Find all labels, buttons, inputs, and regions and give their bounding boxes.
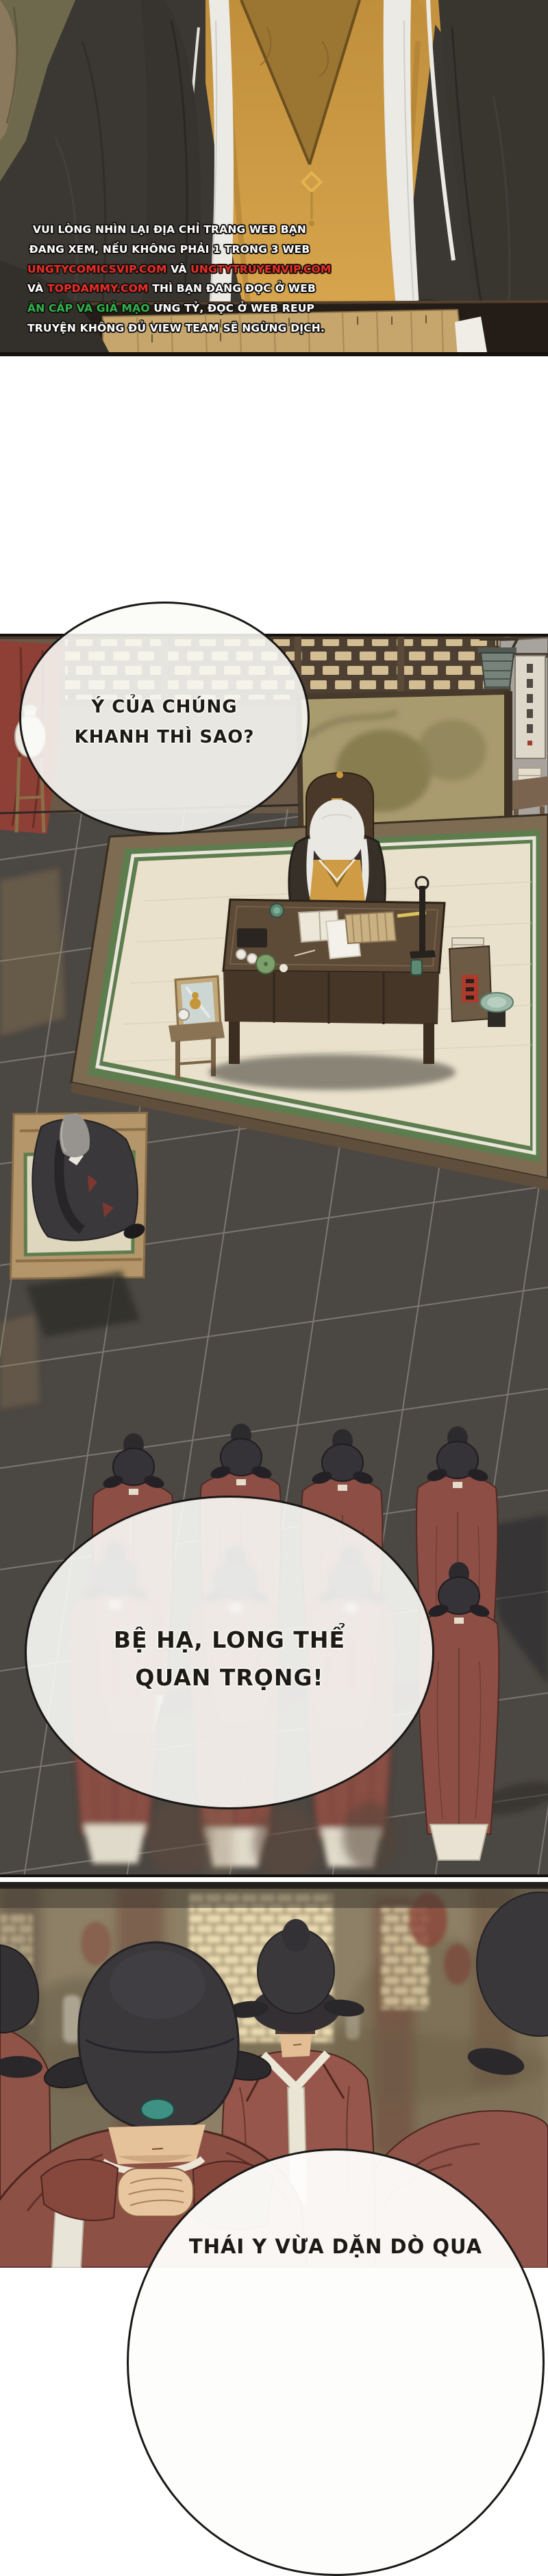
panel1-artwork xyxy=(0,0,548,356)
calligraphy-scroll xyxy=(512,653,548,758)
bubble-text-line: BỆ HẠ, LONG THỂ xyxy=(114,1621,345,1659)
speech-bubble-emperor: Ý CỦA CHÚNG KHANH THÌ SAO? xyxy=(19,602,310,834)
panel2-bottom-border xyxy=(0,1874,548,1877)
speech-bubble-physician: THÁI Y VỪA DẶN DÒ QUA xyxy=(127,2148,545,2576)
panel-closeup-gold-robe: VUI LÒNG NHÌN LẠI ĐỊA CHỈ TRANG WEB BẠN … xyxy=(0,0,548,356)
manga-page: { "page": {"width": 800, "height": 3310,… xyxy=(0,0,548,2268)
top-shade xyxy=(0,1887,548,1908)
speech-bubble-officials: BỆ HẠ, LONG THỂ QUAN TRỌNG! xyxy=(25,1496,434,1809)
desk-shadow xyxy=(209,1054,456,1090)
clasped-hands xyxy=(118,2168,193,2216)
blurred-floor-shadows xyxy=(147,1802,397,1877)
bubble-text-line: QUAN TRỌNG! xyxy=(135,1659,323,1696)
panel1-bottom-border xyxy=(0,352,548,356)
bubble-text-line: KHANH THÌ SAO? xyxy=(75,722,255,752)
jade-hat-ornament xyxy=(141,2099,174,2120)
bubble-text-line: THÁI Y VỪA DẶN DÒ QUA xyxy=(129,2234,543,2259)
bubble-text-line: Ý CỦA CHÚNG xyxy=(91,692,237,722)
